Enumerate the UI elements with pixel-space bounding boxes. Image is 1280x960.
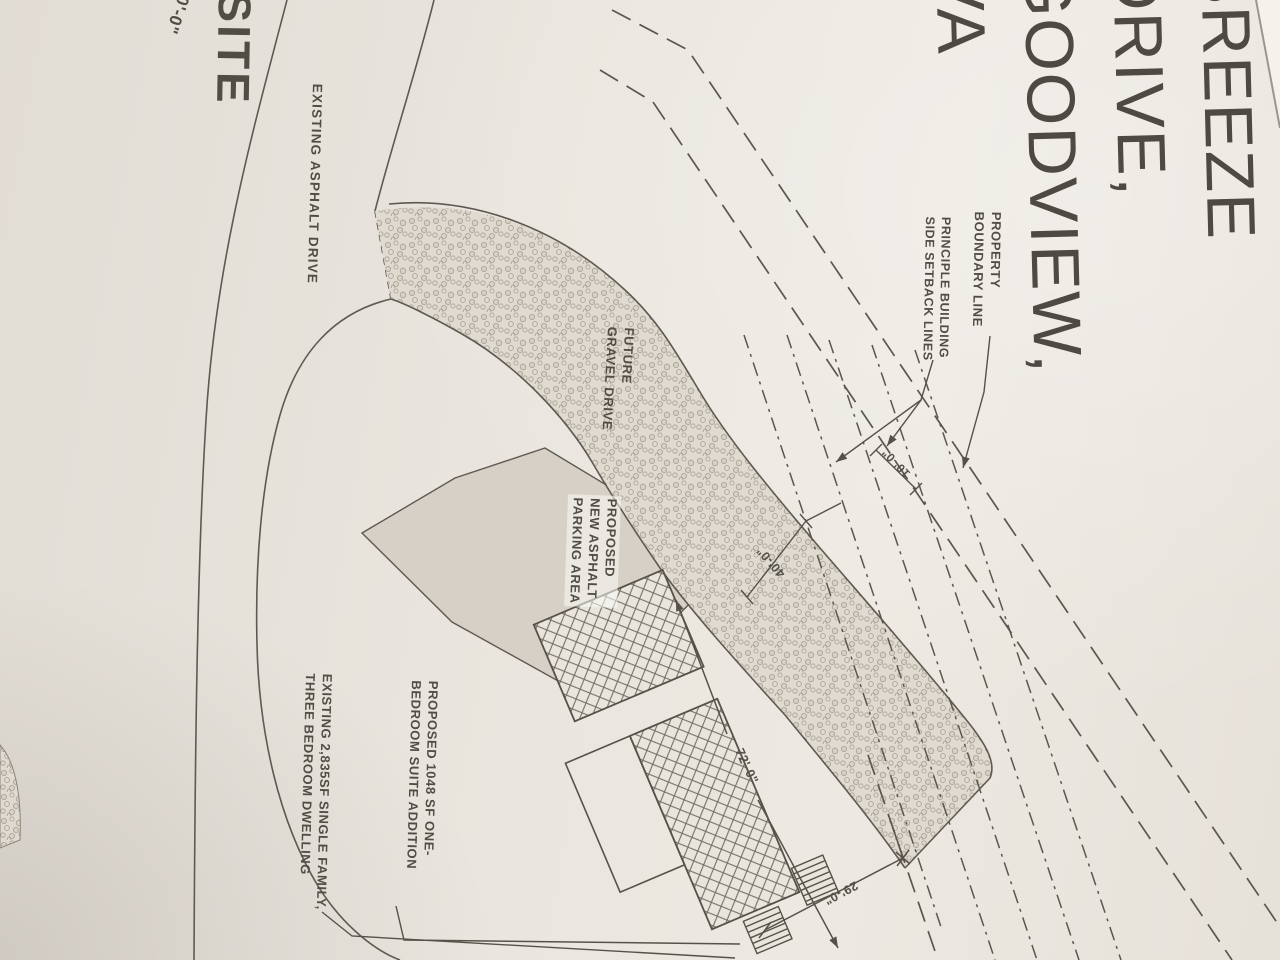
label-suite-addition: PROPOSED 1048 SF ONE- BEDROOM SUITE ADDI… [402, 680, 441, 870]
gravel-corner-patch [0, 745, 20, 848]
label-parking-area: PROPOSED NEW ASPHALT PARKING AREA [564, 494, 621, 608]
label-property-boundary-line: PROPERTY BOUNDARY LINE [968, 211, 1004, 327]
label-dwelling: EXISTING 2,835SF SINGLE FAMILY, THREE BE… [295, 673, 335, 910]
label-future-gravel-drive: FUTURE GRAVEL DRIVE [598, 326, 637, 431]
label-setback-lines: PRINCIPLE BUILDING SIDE SETBACK LINES [919, 216, 954, 361]
site-plan-photo: SITE 20'-0" BREEZE DRIVE, GOODVIEW, VA E… [0, 0, 1280, 960]
sheet-title: SITE [202, 0, 264, 106]
